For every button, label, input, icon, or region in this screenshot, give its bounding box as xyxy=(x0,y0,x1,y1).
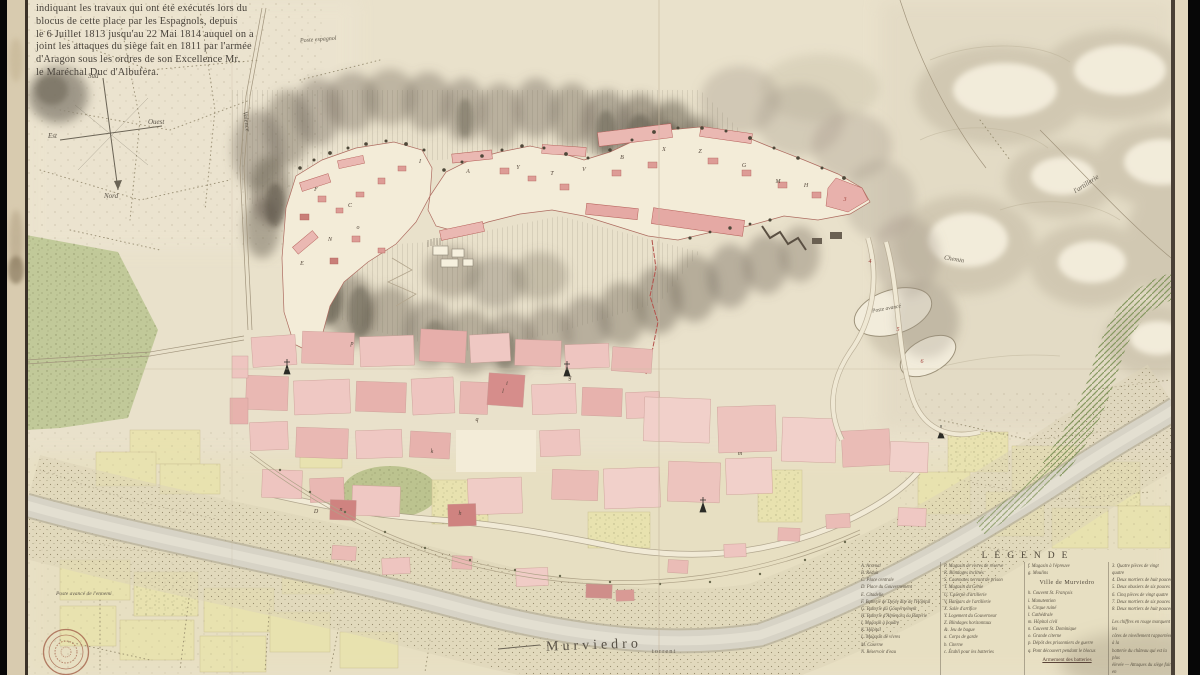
legend-entry: c. Établi pour les batteries xyxy=(944,649,1022,656)
legend-entry: a. Corps de garde xyxy=(944,634,1022,641)
map-letter: 5 xyxy=(897,327,900,333)
legend-col3-top: f. Magasin à l'épreuveg. Moulins xyxy=(1028,563,1106,577)
map-letter: 6 xyxy=(921,359,924,365)
poste-avance-ennemi-label: Poste avancé de l'ennemi xyxy=(56,591,112,597)
legend-entry: B. Réduit xyxy=(861,570,938,577)
legend-entry: M. Caserne xyxy=(861,642,938,649)
legend-entry: D. Place du Gouvernement xyxy=(861,584,938,591)
river-type-label: torrent xyxy=(652,648,676,655)
map-letter: 4 xyxy=(869,259,872,265)
legend-entry: R. Blindages inclinés xyxy=(944,570,1022,577)
legend-entry: S. Casemates servant de prison xyxy=(944,577,1022,584)
title-line: le 6 Juillet 1813 jusqu'au 22 Mai 1814 a… xyxy=(36,29,320,42)
legend-entry: n. Couvent St. Dominique xyxy=(1028,626,1106,633)
map-letter: m xyxy=(738,451,742,457)
map-letter: o xyxy=(357,225,360,231)
legend-entry: &. Jeu de bague xyxy=(944,627,1022,634)
legend-entry: N. Réservoir d'eau xyxy=(861,649,938,656)
legend-entry: 7. Deux mortiers de six pouces xyxy=(1112,599,1172,606)
legend-entry: 4. Deux mortiers de huit pouces xyxy=(1112,577,1172,584)
map-letter: A xyxy=(466,169,470,175)
map-letter: i xyxy=(506,381,508,387)
compass-west-label: Ouest xyxy=(148,118,164,126)
legend-col3-items: h. Couvent St. Françoisi. Manutentionk. … xyxy=(1028,590,1106,654)
title-line: d'Aragon sous les ordres de son Excellen… xyxy=(36,54,320,67)
map-letter: C xyxy=(348,203,352,209)
legend-entry: P. Magasin de vivres de réserve xyxy=(944,563,1022,570)
legend-columns: A. ArsenalB. RéduitC. Place centraleD. P… xyxy=(858,562,1176,675)
legend-entry: U. Caserne d'artillerie xyxy=(944,592,1022,599)
legend-entry: m. Hôpital civil xyxy=(1028,619,1106,626)
map-letter: I xyxy=(419,159,421,165)
map-title-cartouche: indiquant les travaux qui ont été exécut… xyxy=(36,3,320,80)
legend-entry: k. Cirque ruiné xyxy=(1028,605,1106,612)
legend-entry: F. Batterie de Doyle dite de l'Hôpital xyxy=(861,599,938,606)
map-letter: B xyxy=(620,155,624,161)
legend-entry: 8. Deux mortiers de huit pouces xyxy=(1112,606,1172,613)
legend-column-3: f. Magasin à l'épreuveg. Moulins Ville d… xyxy=(1024,562,1108,675)
map-letter: Z xyxy=(698,149,701,155)
legend-column-2: P. Magasin de vivres de réserveR. Blinda… xyxy=(940,562,1024,675)
legend-entry: h. Couvent St. François xyxy=(1028,590,1106,597)
map-letter: X xyxy=(662,147,666,153)
map-letter: n xyxy=(340,507,343,513)
legend-entry: 3. Quatre pièces de vingt quatre xyxy=(1112,563,1172,577)
map-letter: l xyxy=(502,389,504,395)
legend-entry: E. Citadelle xyxy=(861,592,938,599)
legend-subheading-ville: Ville de Murviedro xyxy=(1028,579,1106,588)
map-letter: V xyxy=(582,167,586,173)
legend-entry: p. Dépôt des prisonniers de guerre xyxy=(1028,640,1106,647)
legend-entry: g. Moulins xyxy=(1028,570,1106,577)
map-letter: T xyxy=(550,171,553,177)
title-line: indiquant les travaux qui ont été exécut… xyxy=(36,3,320,16)
legend-entry: A. Arsenal xyxy=(861,563,938,570)
legend-note-line: Les chiffres en rouge marquent les xyxy=(1112,619,1172,633)
scanned-siege-map-of-murviedro: indiquant les travaux qui ont été exécut… xyxy=(0,0,1200,675)
map-letter: N xyxy=(328,237,332,243)
legend-entry: H. Batterie d'Almenara ou Batterie xyxy=(861,613,938,620)
legend-entry: b. Citerne xyxy=(944,642,1022,649)
legend-note-line: batterie du château qui est la plus xyxy=(1112,648,1172,662)
legend-entry: q. Pont découvert pendant le blocus xyxy=(1028,648,1106,655)
legend-entry: Z. Blindages horizontaux xyxy=(944,620,1022,627)
legend-column-4: 3. Quatre pièces de vingt quatre4. Deux … xyxy=(1108,562,1174,675)
legend-subheading-armement: Armement des batteries xyxy=(1028,657,1106,665)
legend-entry: V. Hangars de l'artillerie xyxy=(944,599,1022,606)
legend-col4-items: 3. Quatre pièces de vingt quatre4. Deux … xyxy=(1112,563,1172,613)
legend-entry: o. Grande citerne xyxy=(1028,633,1106,640)
map-letter: D xyxy=(314,509,318,515)
map-letter: G xyxy=(742,163,746,169)
plaza xyxy=(456,430,536,472)
map-letter: g xyxy=(569,375,572,381)
legend-entry: T. Magasin du Génie xyxy=(944,584,1022,591)
title-line: joint les attaques du siège fait en 1811… xyxy=(36,41,320,54)
title-line: blocus de cette place par les Espagnols,… xyxy=(36,16,320,29)
map-letter: 3 xyxy=(844,197,847,203)
legend-entry: Y. Logement du Gouverneur xyxy=(944,613,1022,620)
legend-note-line: élevée — Attaques du siège fait en xyxy=(1112,662,1172,675)
map-letter: p xyxy=(351,341,354,347)
legend-heading: LÉGENDE xyxy=(910,551,1146,561)
legend-entry: 6. Cinq pièces de vingt quatre xyxy=(1112,592,1172,599)
map-letter: F xyxy=(314,187,318,193)
compass-south-label: Sud xyxy=(88,72,99,80)
legend-entry: X. Salle d'artifice xyxy=(944,606,1022,613)
legend-col4-note: Les chiffres en rouge marquent lescôtes … xyxy=(1112,619,1172,675)
legend-entry: G. Batterie du Gouvernement xyxy=(861,606,938,613)
map-letter: q xyxy=(476,417,479,423)
map-letter: E xyxy=(300,261,304,267)
legend-entry: L. Magasin de vivres xyxy=(861,634,938,641)
map-letter: M xyxy=(776,179,781,185)
legend-column-1: A. ArsenalB. RéduitC. Place centraleD. P… xyxy=(858,562,940,675)
legend: LÉGENDE A. ArsenalB. RéduitC. Place cent… xyxy=(858,549,1176,675)
compass-east-label: Est xyxy=(48,132,57,140)
map-letter: Y xyxy=(516,165,519,171)
compass-north-label: Nord xyxy=(104,192,118,200)
legend-entry: 5. Deux obusiers de six pouces xyxy=(1112,584,1172,591)
legend-entry: I. Magasin à poudre xyxy=(861,620,938,627)
legend-entry: K. Hôpital xyxy=(861,627,938,634)
legend-entry: i. Manutention xyxy=(1028,598,1106,605)
map-letter: h xyxy=(459,511,462,517)
river-name-label: Murviedro xyxy=(546,636,642,655)
title-line: le Maréchal Duc d'Albufera. xyxy=(36,67,320,80)
legend-entry: f. Magasin à l'épreuve xyxy=(1028,563,1106,570)
legend-note-line: côtes de nivellement rapportées à la xyxy=(1112,633,1172,647)
legend-entry: l. Cathédrale xyxy=(1028,612,1106,619)
map-letter: H xyxy=(804,183,808,189)
map-letter: k xyxy=(431,449,434,455)
legend-entry: C. Place centrale xyxy=(861,577,938,584)
